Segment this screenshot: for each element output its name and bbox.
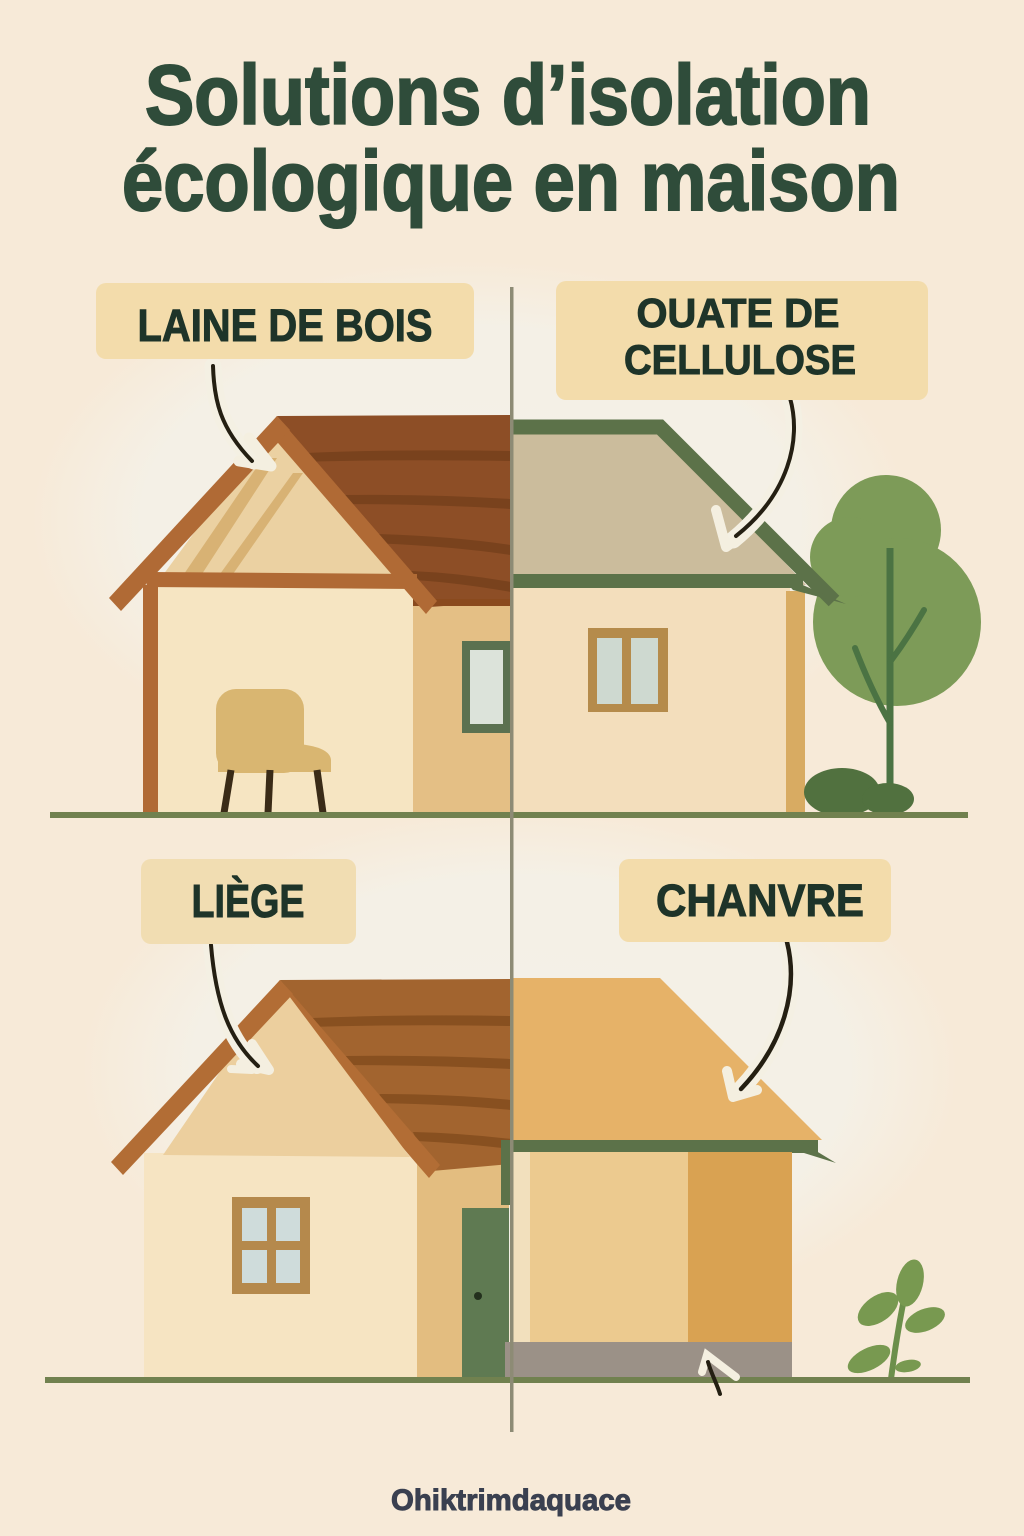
svg-text:Ohiktrimdaquace: Ohiktrimdaquace [391,1484,631,1517]
svg-text:Solutions d’isolation: Solutions d’isolation [145,48,871,142]
svg-text:LAINE DE BOIS: LAINE DE BOIS [138,300,433,351]
svg-text:CELLULOSE: CELLULOSE [624,336,856,383]
svg-text:OUATE DE: OUATE DE [637,290,840,336]
svg-text:écologique en maison: écologique en maison [122,134,900,228]
svg-text:LIÈGE: LIÈGE [192,875,305,927]
svg-text:CHANVRE: CHANVRE [656,875,864,926]
